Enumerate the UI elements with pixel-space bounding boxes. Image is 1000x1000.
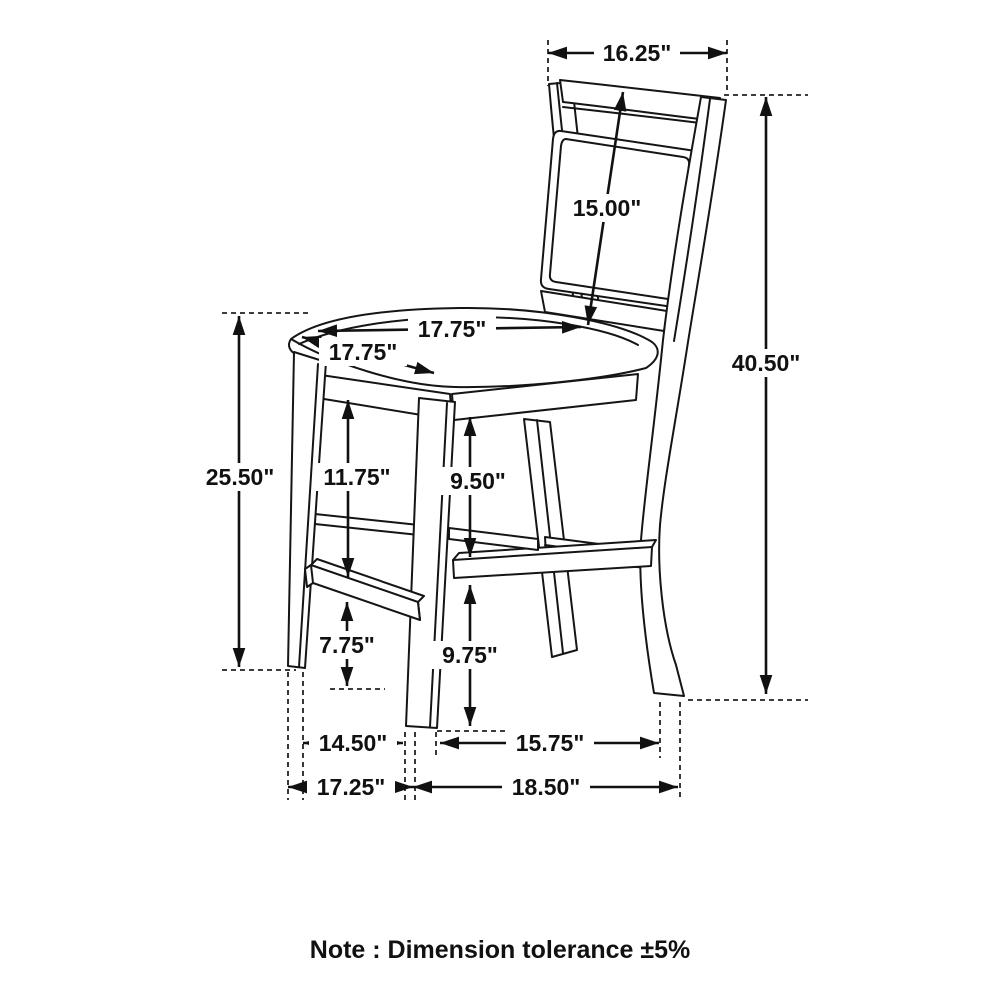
left-side-stretcher bbox=[315, 514, 419, 535]
dim-back-height-label: 15.00" bbox=[573, 195, 641, 221]
diagram-svg: 16.25" 15.00" 40.50" 17.75" 17.75" 25.50… bbox=[0, 0, 1000, 1000]
dim-base-width-label: 17.25" bbox=[317, 774, 385, 800]
chair-line-drawing bbox=[288, 80, 726, 728]
dim-overall-height-label: 40.50" bbox=[732, 350, 800, 376]
front-left-leg bbox=[288, 352, 326, 668]
front-right-leg bbox=[406, 398, 455, 728]
tolerance-note: Note : Dimension tolerance ±5% bbox=[310, 936, 690, 964]
dim-front-stretcher-to-floor-label: 7.75" bbox=[319, 632, 375, 658]
dim-back-width-label: 16.25" bbox=[603, 40, 671, 66]
dim-base-depth-label: 18.50" bbox=[512, 774, 580, 800]
dim-seat-to-front-stretcher-label: 11.75" bbox=[323, 464, 390, 490]
dim-side-stretcher-to-floor-label: 9.75" bbox=[442, 642, 498, 668]
dim-seat-depth-label: 17.75" bbox=[329, 339, 397, 365]
dim-seat-to-side-stretcher-label: 9.50" bbox=[450, 468, 506, 494]
dim-front-legs-inner-width-label: 14.50" bbox=[319, 730, 387, 756]
dim-seat-width-label: 17.75" bbox=[418, 316, 486, 342]
dim-seat-height-label: 25.50" bbox=[206, 464, 274, 490]
dim-front-to-back-leg-depth-label: 15.75" bbox=[516, 730, 584, 756]
chair-dimensions-diagram: 16.25" 15.00" 40.50" 17.75" 17.75" 25.50… bbox=[0, 0, 1000, 1000]
